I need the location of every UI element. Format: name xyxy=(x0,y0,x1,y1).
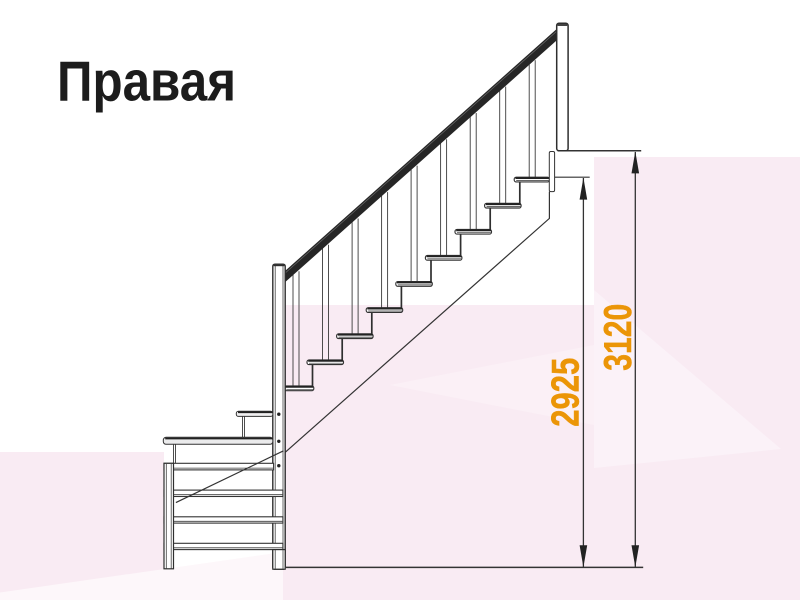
svg-text:Правая: Правая xyxy=(57,50,236,114)
svg-text:3120: 3120 xyxy=(597,304,640,371)
svg-text:2925: 2925 xyxy=(545,358,588,427)
